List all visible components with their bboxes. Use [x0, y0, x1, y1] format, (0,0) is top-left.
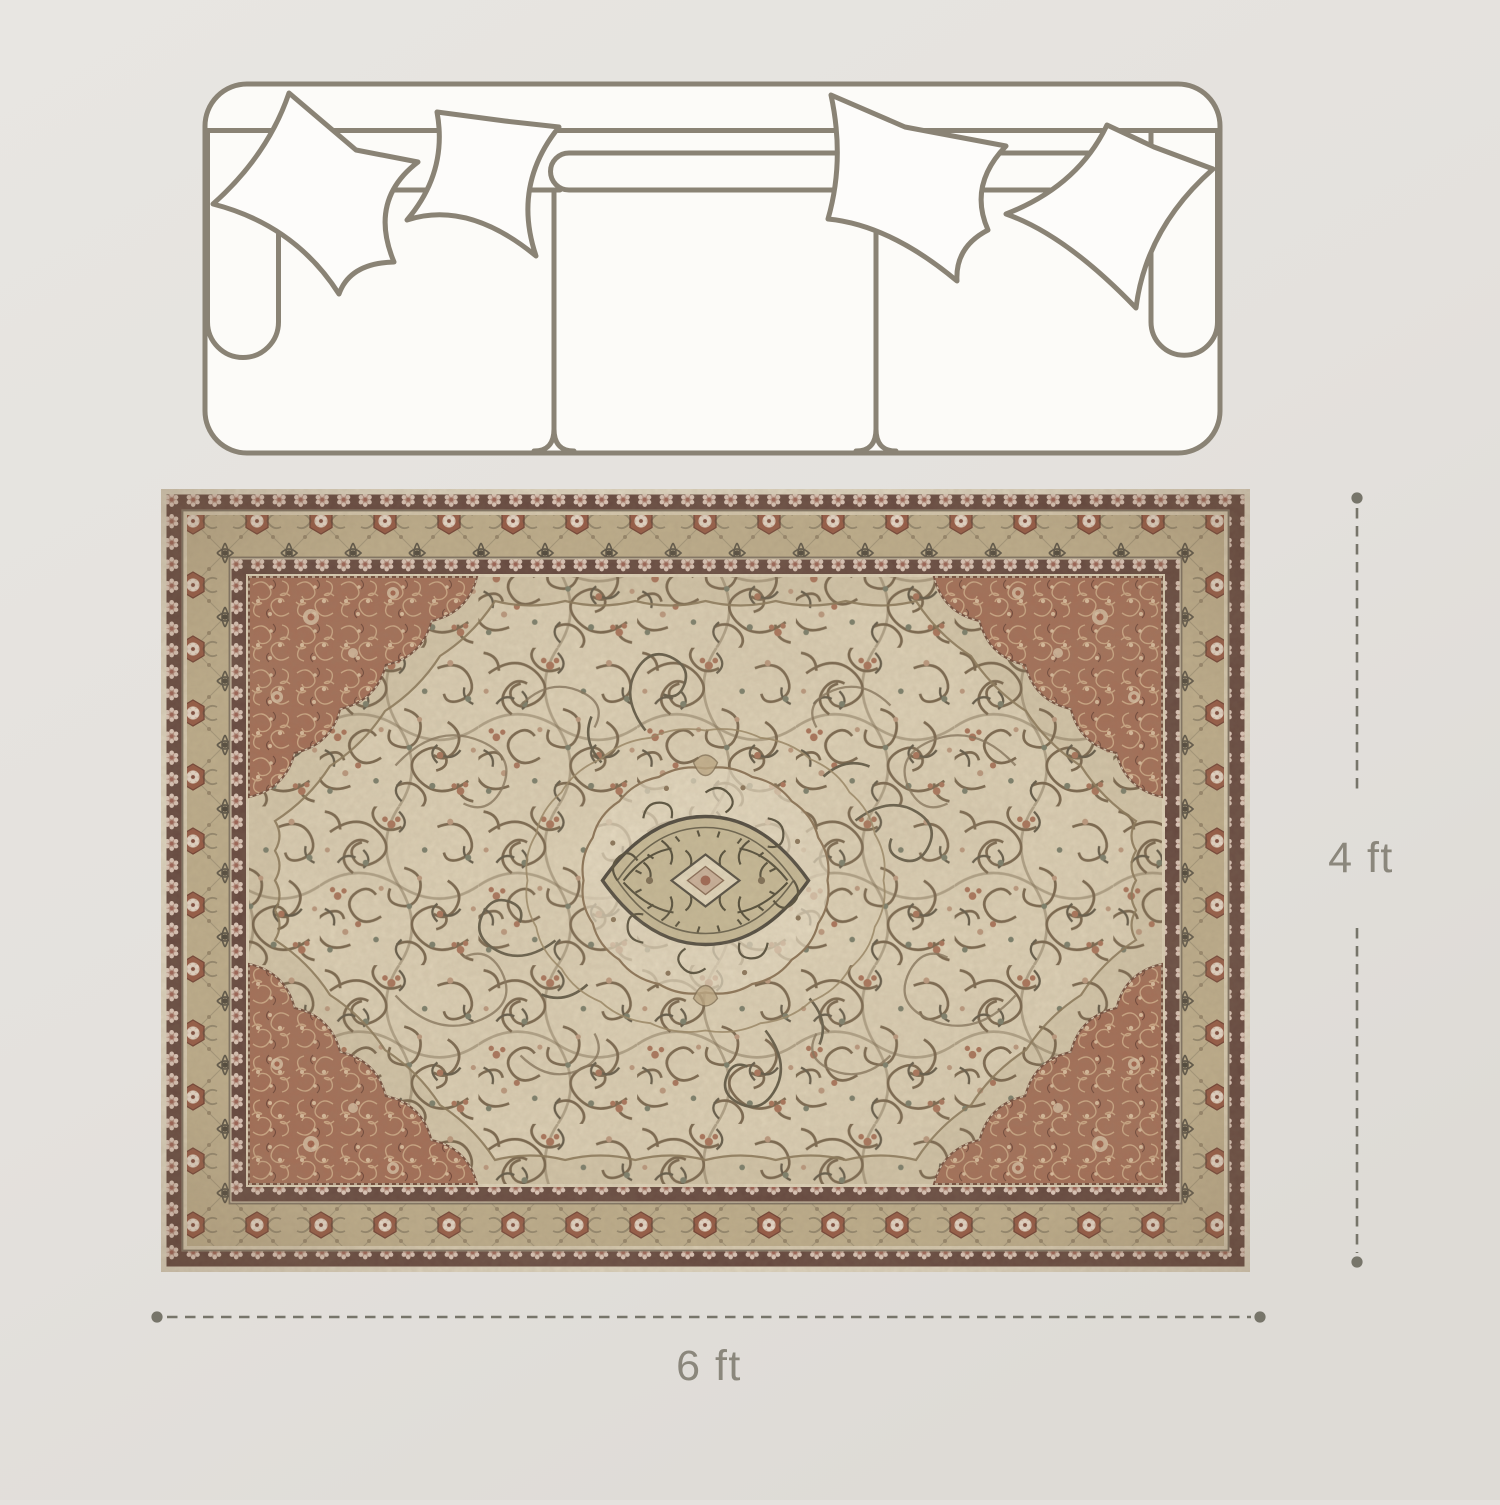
svg-text:4 ft: 4 ft — [1328, 834, 1394, 882]
svg-text:6 ft: 6 ft — [676, 1342, 742, 1390]
